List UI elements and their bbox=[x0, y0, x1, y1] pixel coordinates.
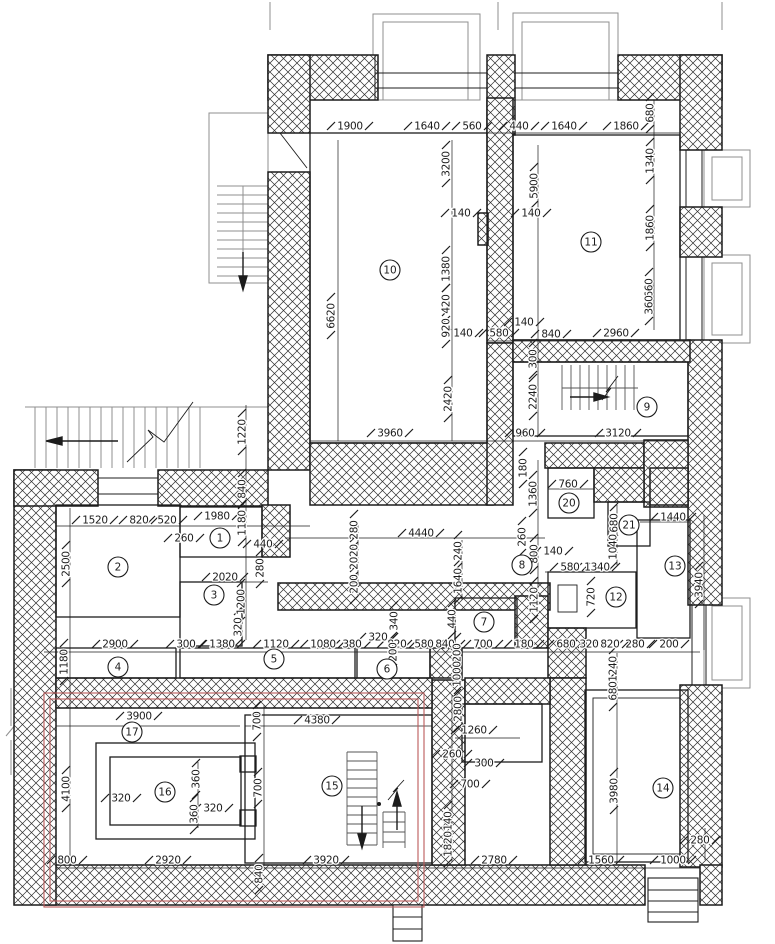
dim-tick bbox=[237, 640, 245, 648]
dim-tick bbox=[255, 854, 263, 862]
dim-tick bbox=[60, 639, 68, 647]
dim-tick bbox=[119, 516, 127, 524]
dim-tick bbox=[580, 480, 588, 488]
dim-label: 2240 bbox=[528, 384, 540, 410]
dim-label: 800 bbox=[57, 855, 76, 867]
dim-label: 140 bbox=[514, 317, 533, 329]
external-stair-top-left bbox=[209, 113, 268, 283]
dim-tick bbox=[609, 703, 617, 711]
dim-label: 1980 bbox=[204, 511, 230, 523]
dim-label: 4100 bbox=[61, 776, 73, 802]
dim-tick bbox=[444, 414, 452, 422]
dim-tick bbox=[62, 579, 70, 587]
dim-label: 1040 bbox=[608, 534, 620, 560]
dim-tick bbox=[398, 529, 406, 537]
dim-label: 2500 bbox=[61, 551, 73, 577]
dim-label: 840 bbox=[541, 329, 560, 341]
dim-tick bbox=[531, 122, 539, 130]
floor-plan-canvas: 1900164056044016401860680134018606603605… bbox=[0, 0, 775, 944]
dim-tick bbox=[482, 780, 490, 788]
dim-label: 1200 bbox=[236, 589, 248, 615]
dim-label: 200 bbox=[349, 574, 361, 593]
dim-tick bbox=[327, 331, 335, 339]
dim-tick bbox=[256, 580, 264, 588]
dim-label: 3200 bbox=[441, 151, 453, 177]
dim-label: 1220 bbox=[237, 419, 249, 445]
dim-label: 2920 bbox=[155, 855, 181, 867]
dim-tick bbox=[238, 538, 246, 546]
dim-label: 260 bbox=[442, 749, 461, 761]
dim-label: 1860 bbox=[613, 121, 639, 133]
dim-label: 180 bbox=[514, 639, 533, 651]
dim-tick bbox=[253, 640, 261, 648]
dim-label: 580 bbox=[414, 639, 433, 651]
dim-tick bbox=[529, 509, 537, 517]
dim-tick bbox=[529, 471, 537, 479]
dim-tick bbox=[253, 733, 261, 741]
dim-tick bbox=[452, 122, 460, 130]
dim-tick bbox=[192, 791, 200, 799]
dim-tick bbox=[404, 122, 412, 130]
room-number-label: 13 bbox=[668, 561, 681, 573]
dim-tick bbox=[291, 640, 299, 648]
dim-label: 200 bbox=[659, 639, 678, 651]
dim-label: 360 bbox=[189, 804, 201, 823]
dim-tick bbox=[509, 856, 517, 864]
dim-tick bbox=[442, 179, 450, 187]
floor-plan-drawing: 1900164056044016401860680134018606603605… bbox=[0, 0, 775, 944]
dim-tick bbox=[471, 856, 479, 864]
dim-label: 5900 bbox=[529, 173, 541, 199]
dim-tick bbox=[190, 826, 198, 834]
room-number-label: 6 bbox=[384, 664, 391, 676]
dim-tick bbox=[609, 562, 617, 570]
room-number-label: 20 bbox=[562, 498, 575, 510]
dim-tick bbox=[238, 447, 246, 455]
dim-label: 1380 bbox=[209, 639, 235, 651]
dim-label: 760 bbox=[558, 479, 577, 491]
dim-tick bbox=[519, 480, 527, 488]
dim-tick bbox=[300, 640, 308, 648]
dim-tick bbox=[579, 122, 587, 130]
room-numbers-layer: 12345678910111213141516172021 bbox=[108, 232, 685, 802]
dim-tick bbox=[593, 329, 601, 337]
dim-label: 660 bbox=[644, 278, 656, 297]
dim-tick bbox=[164, 534, 172, 542]
dim-label: 280 bbox=[349, 520, 361, 539]
dim-tick bbox=[444, 376, 452, 384]
dim-label: 4440 bbox=[408, 528, 434, 540]
dim-label: 320 bbox=[203, 803, 222, 815]
dim-tick bbox=[194, 512, 202, 520]
dim-label: 440 bbox=[253, 539, 272, 551]
dim-tick bbox=[646, 176, 654, 184]
dim-label: 580 bbox=[489, 328, 508, 340]
dim-label: 2960 bbox=[603, 328, 629, 340]
dim-label: 260 bbox=[517, 527, 529, 546]
dim-tick bbox=[646, 205, 654, 213]
room-number-label: 15 bbox=[325, 781, 338, 793]
dim-label: 280 bbox=[690, 835, 709, 847]
dim-tick bbox=[116, 712, 124, 720]
dim-tick bbox=[650, 856, 658, 864]
dim-label: 260 bbox=[174, 533, 193, 545]
dim-tick bbox=[327, 122, 335, 130]
dim-label: 820 bbox=[600, 639, 619, 651]
dim-label: 1440 bbox=[660, 512, 686, 524]
dim-tick bbox=[243, 540, 251, 548]
dim-label: 360 bbox=[191, 769, 203, 788]
dim-label: 360 bbox=[644, 295, 656, 314]
dim-label: 580 bbox=[560, 562, 579, 574]
dim-label: 180 bbox=[518, 458, 530, 477]
dim-tick bbox=[496, 759, 504, 767]
dim-tick bbox=[62, 804, 70, 812]
dim-label: 1340 bbox=[584, 562, 610, 574]
dim-tick bbox=[367, 429, 375, 437]
room-number-label: 12 bbox=[609, 592, 622, 604]
dim-label: 3940 bbox=[694, 572, 706, 598]
dim-label: 1640 bbox=[453, 568, 465, 594]
dim-tick bbox=[646, 125, 654, 133]
dim-label: 960 bbox=[515, 428, 534, 440]
dim-tick bbox=[332, 716, 340, 724]
dim-label: 700 bbox=[460, 779, 479, 791]
dim-label: 2020 bbox=[349, 544, 361, 570]
room-number-label: 3 bbox=[211, 590, 218, 602]
dim-label: 1860 bbox=[645, 215, 657, 241]
dim-tick bbox=[62, 541, 70, 549]
dim-tick bbox=[145, 856, 153, 864]
dim-label: 3920 bbox=[313, 855, 339, 867]
dim-label: 280 bbox=[255, 558, 267, 577]
dim-label: 1560 bbox=[588, 855, 614, 867]
dim-label: 1000 bbox=[452, 661, 464, 687]
dim-tick bbox=[350, 510, 358, 518]
dim-label: 2800 bbox=[453, 696, 465, 722]
dim-label: 140 bbox=[521, 208, 540, 220]
dim-label: 1900 bbox=[337, 121, 363, 133]
room-number-label: 7 bbox=[481, 617, 488, 629]
dim-label: 680 bbox=[645, 103, 657, 122]
dim-tick bbox=[130, 640, 138, 648]
dim-tick bbox=[565, 547, 573, 555]
dim-label: 1820 bbox=[443, 831, 455, 857]
dim-label: 1520 bbox=[82, 515, 108, 527]
dim-tick bbox=[92, 640, 100, 648]
dim-label: 1120 bbox=[529, 587, 541, 613]
dim-tick bbox=[190, 794, 198, 802]
walls-layer bbox=[14, 55, 722, 905]
dim-tick bbox=[530, 163, 538, 171]
dim-label: 320 bbox=[368, 632, 387, 644]
room-number-label: 8 bbox=[519, 560, 526, 572]
dim-label: 6620 bbox=[326, 303, 338, 329]
dim-tick bbox=[442, 284, 450, 292]
dim-label: 2420 bbox=[443, 386, 455, 412]
dim-tick bbox=[612, 563, 620, 571]
dim-label: 1380 bbox=[441, 256, 453, 282]
dim-label: 300 bbox=[176, 639, 195, 651]
dim-tick bbox=[436, 529, 444, 537]
dim-label: 700 bbox=[473, 639, 492, 651]
dim-tick bbox=[365, 122, 373, 130]
dim-tick bbox=[541, 122, 549, 130]
dim-tick bbox=[79, 856, 87, 864]
dim-label: 300 bbox=[528, 349, 540, 368]
dim-tick bbox=[475, 329, 483, 337]
room-number-label: 16 bbox=[158, 787, 172, 799]
dim-tick bbox=[101, 794, 109, 802]
dim-tick bbox=[543, 209, 551, 217]
dim-tick bbox=[518, 517, 526, 525]
dim-tick bbox=[62, 766, 70, 774]
dim-label: 3900 bbox=[126, 711, 152, 723]
dim-label: 520 bbox=[157, 515, 176, 527]
dim-label: 680 bbox=[608, 681, 620, 700]
dim-tick bbox=[489, 726, 497, 734]
dim-label: 3980 bbox=[609, 778, 621, 804]
room-number-label: 17 bbox=[125, 727, 138, 739]
dim-tick bbox=[442, 340, 450, 348]
dim-tick bbox=[166, 640, 174, 648]
dim-label: 700 bbox=[252, 711, 264, 730]
dim-tick bbox=[681, 640, 689, 648]
dim-label: 700 bbox=[253, 778, 265, 797]
room-number-label: 5 bbox=[271, 654, 278, 666]
dim-label: 1080 bbox=[310, 639, 336, 651]
room-number-label: 9 bbox=[644, 402, 651, 414]
dim-label: 1340 bbox=[645, 148, 657, 174]
dim-tick bbox=[519, 448, 527, 456]
room-number-label: 10 bbox=[383, 265, 396, 277]
dim-label: 4380 bbox=[304, 715, 330, 727]
dim-label: 440 bbox=[447, 609, 459, 628]
dim-label: 320 bbox=[233, 617, 245, 636]
dim-label: 440 bbox=[509, 121, 528, 133]
dim-label: 720 bbox=[586, 587, 598, 606]
dim-tick bbox=[238, 409, 246, 417]
dim-label: 1180 bbox=[237, 510, 249, 536]
dim-tick bbox=[442, 141, 450, 149]
dim-tick bbox=[529, 412, 537, 420]
dim-tick bbox=[536, 318, 544, 326]
dim-tick bbox=[110, 516, 118, 524]
dim-label: 140 bbox=[451, 208, 470, 220]
dim-label: 2780 bbox=[481, 855, 507, 867]
dim-tick bbox=[199, 640, 207, 648]
dim-label: 320 bbox=[579, 639, 598, 651]
dim-tick bbox=[192, 759, 200, 767]
room-number-label: 21 bbox=[622, 520, 635, 532]
dim-label: 320 bbox=[111, 793, 130, 805]
dim-tick bbox=[133, 794, 141, 802]
dim-label: 2900 bbox=[102, 639, 128, 651]
room-number-label: 1 bbox=[217, 533, 224, 545]
dim-label: 840 bbox=[237, 479, 249, 498]
dim-label: 560 bbox=[462, 121, 481, 133]
room-number-label: 4 bbox=[115, 662, 122, 674]
dim-label: 1180 bbox=[59, 649, 71, 675]
dim-label: 380 bbox=[342, 639, 361, 651]
dim-tick bbox=[183, 856, 191, 864]
dim-label: 680 bbox=[556, 639, 575, 651]
room-number-label: 14 bbox=[656, 783, 670, 795]
dim-tick bbox=[548, 480, 556, 488]
dim-label: 340 bbox=[389, 611, 401, 630]
dim-label: 300 bbox=[474, 758, 493, 770]
room-number-label: 11 bbox=[584, 237, 597, 249]
dim-label: 240 bbox=[453, 541, 465, 560]
dim-label: 2020 bbox=[212, 572, 238, 584]
dim-label: 840 bbox=[254, 864, 266, 883]
dim-tick bbox=[645, 268, 653, 276]
dim-label: 1000 bbox=[660, 855, 686, 867]
dim-tick bbox=[504, 640, 512, 648]
dim-label: 1360 bbox=[528, 481, 540, 507]
room-number-label: 2 bbox=[115, 562, 122, 574]
dim-label: 820 bbox=[129, 515, 148, 527]
dim-tick bbox=[550, 563, 558, 571]
dim-tick bbox=[198, 640, 206, 648]
dim-label: 1240 bbox=[608, 656, 620, 682]
dim-tick bbox=[603, 122, 611, 130]
dim-label: 420 bbox=[441, 294, 453, 313]
dim-tick bbox=[225, 804, 233, 812]
dim-tick bbox=[631, 329, 639, 337]
dim-label: 1640 bbox=[414, 121, 440, 133]
dim-tick bbox=[441, 209, 449, 217]
dim-tick bbox=[442, 246, 450, 254]
dim-label: 1640 bbox=[551, 121, 577, 133]
dim-label: 140 bbox=[443, 811, 455, 830]
dim-tick bbox=[327, 293, 335, 301]
dim-label: 1260 bbox=[461, 725, 487, 737]
dim-tick bbox=[479, 329, 487, 337]
dim-tick bbox=[587, 577, 595, 585]
dim-label: 280 bbox=[625, 639, 644, 651]
dim-tick bbox=[563, 330, 571, 338]
dim-label: 200 bbox=[452, 643, 464, 662]
dim-label: 140 bbox=[543, 546, 562, 558]
dim-tick bbox=[645, 317, 653, 325]
dim-tick bbox=[405, 429, 413, 437]
dim-tick bbox=[72, 516, 80, 524]
dim-label: 3960 bbox=[377, 428, 403, 440]
dim-tick bbox=[196, 534, 204, 542]
dim-label: 3120 bbox=[605, 428, 631, 440]
dim-label: 920 bbox=[441, 318, 453, 337]
dim-tick bbox=[154, 712, 162, 720]
dim-tick bbox=[442, 122, 450, 130]
dim-tick bbox=[294, 716, 302, 724]
dim-label: 140 bbox=[453, 328, 472, 340]
dim-tick bbox=[646, 243, 654, 251]
dim-tick bbox=[646, 138, 654, 146]
dim-tick bbox=[495, 640, 503, 648]
dim-tick bbox=[587, 609, 595, 617]
dim-tick bbox=[202, 573, 210, 581]
